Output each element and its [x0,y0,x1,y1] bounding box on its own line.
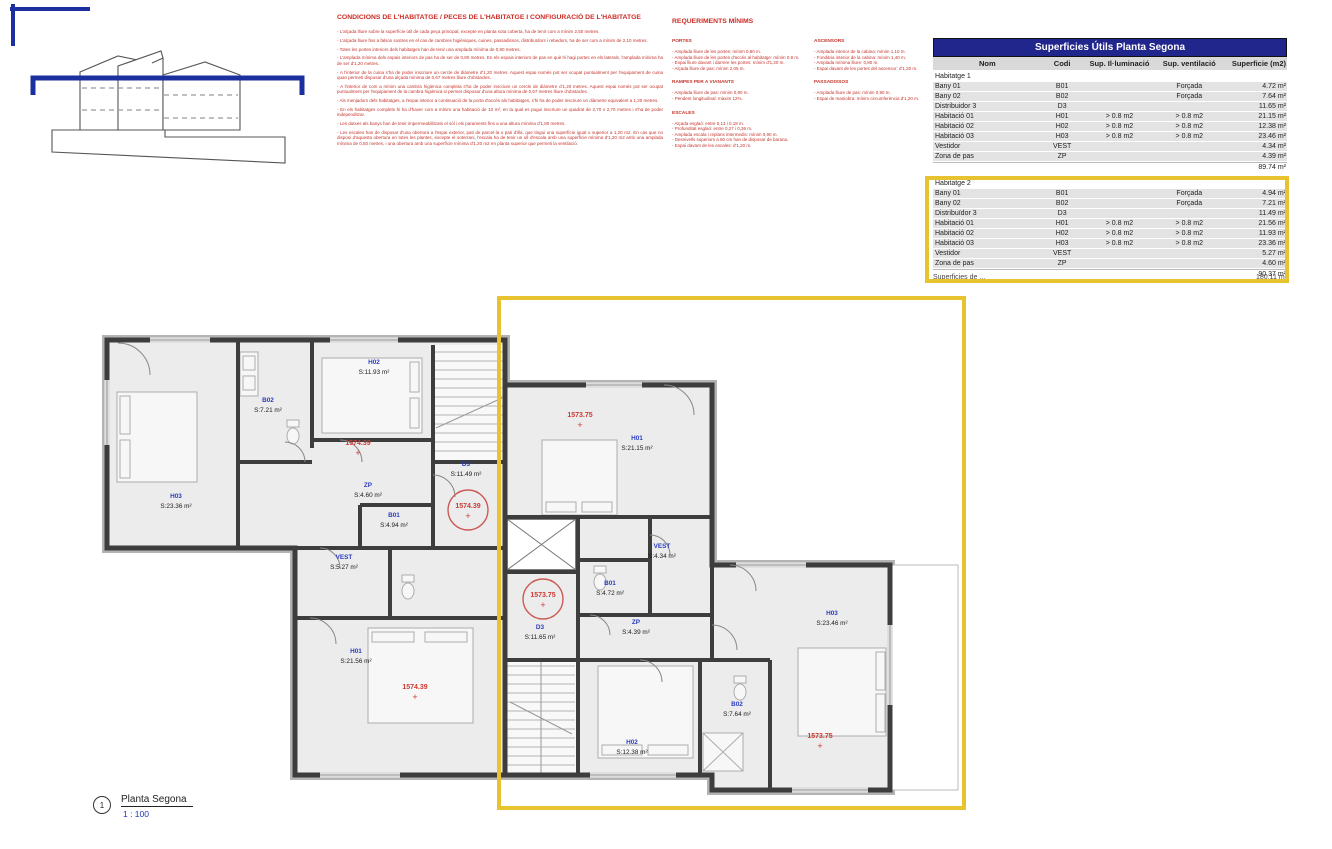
req-section-title: RAMPES PER A VIANANTS [672,80,810,85]
req-item: - Alçada lliure de pas: mínim 2,05 m. [672,66,810,72]
table-group-total: 89.74 m² [1224,164,1287,172]
table-cell: 11.65 m² [1224,103,1287,111]
table-row: Distribuidor 3D311.65 m² [933,102,1287,111]
table-cell: > 0.8 m2 [1085,230,1155,238]
table-cell: > 0.8 m2 [1154,240,1224,248]
table-cell: B01 [1040,83,1085,91]
room-code: H03 [170,493,182,500]
table-cell [1154,153,1224,161]
room-area: S:11.93 m² [359,369,390,376]
drawing-sheet: CONDICIONS DE L'HABITATGE / PECES DE L'H… [0,0,1332,849]
table-cell: Bany 02 [933,93,1040,101]
datum-cross-icon: + [540,600,545,610]
table-cell: 11.93 m² [1224,230,1287,238]
table-cell: H03 [1040,240,1085,248]
room-code: D3 [462,461,471,468]
floor-plan: H03S:23.36 m²B02S:7.21 m²H02S:11.93 m²ZP… [90,328,970,815]
table-col-header: Sup. ventilació [1154,59,1224,68]
table-title: Superficies Útils Planta Segona [933,38,1287,57]
elevation-buildings [52,51,285,163]
table-cell: 4.72 m² [1224,83,1287,91]
condition-item: - L'amplada mínima dels espais interiors… [337,55,663,66]
table-col-header: Superficie (m2) [1224,59,1287,68]
table-cell: D3 [1040,210,1085,218]
req-col-1: PORTES- Amplada lliure de les portes: mí… [672,39,810,158]
table-cell [1085,210,1155,218]
table-cell: 7.21 m² [1224,200,1287,208]
sink-counter [240,352,258,396]
room-code: ZP [364,482,373,489]
table-cell [1085,250,1155,258]
table-cell: D3 [1040,103,1085,111]
req-section-title: ESCALES [672,111,810,116]
table-cell [1154,250,1224,258]
view-number-badge: 1 [93,796,111,814]
table-total-row: 89.74 m² [933,162,1287,172]
table-cell: 4.94 m² [1224,190,1287,198]
table-row: Distribuïdor 3D311.49 m² [933,209,1287,218]
table-cell: 11.49 m² [1224,210,1287,218]
room-code: D3 [536,624,545,631]
table-cell: > 0.8 m2 [1085,240,1155,248]
req-item: - Espai davant de les escales: d'1,20 m. [672,143,810,149]
condition-item: - L'alçada lliure sobre la superfície út… [337,29,663,34]
table-cell: 7.64 m² [1224,93,1287,101]
table-cell: Zona de pas [933,153,1040,161]
conditions-title: CONDICIONS DE L'HABITATGE / PECES DE L'H… [337,14,663,22]
table-cell: VEST [1040,250,1085,258]
table-row: Bany 01B01Forçada4.72 m² [933,82,1287,91]
datum-cross-icon: + [412,692,417,702]
table-cell: H01 [1040,113,1085,121]
room-area: S:23.46 m² [816,620,847,627]
table-cell [1085,190,1155,198]
req-section: RAMPES PER A VIANANTS- Amplada lliure de… [672,80,810,101]
table-group: Habitatge 2Bany 01B01Forçada4.94 m²Bany … [933,179,1287,280]
datum-value: 1574.39 [402,684,427,691]
room-code: H01 [631,435,643,442]
room-area: S:5.27 m² [330,564,358,571]
table-cell: 21.15 m² [1224,113,1287,121]
table-cell [1085,200,1155,208]
elevator-shaft [507,519,576,570]
requirements-title: REQUERIMENTS MÍNIMS [672,18,942,25]
table-group-name-row: Habitatge 2 [933,179,1287,188]
table-cell: ZP [1040,260,1085,268]
table-row: Habitació 02H02> 0.8 m2> 0.8 m211.93 m² [933,229,1287,238]
table-cell: Habitació 01 [933,113,1040,121]
table-cell [1085,153,1155,161]
table-cell [1154,210,1224,218]
table-cell: VEST [1040,143,1085,151]
room-code: VEST [336,554,353,561]
table-cell: 23.46 m² [1224,133,1287,141]
condition-item: - Totes les portes interiors dels habita… [337,47,663,52]
table-row: Habitació 03H03> 0.8 m2> 0.8 m223.36 m² [933,239,1287,248]
table-cell: Zona de pas [933,260,1040,268]
plan-scale: 1 : 100 [121,809,193,819]
table-columns: NomCodiSup. Il·luminacióSup. ventilacióS… [933,57,1287,71]
table-row: Zona de pasZP4.39 m² [933,152,1287,161]
table-cell: Bany 01 [933,190,1040,198]
condition-item: - Les dutxes als banys han de tenir impe… [337,121,663,126]
req-item: - Espai de maniobra: mínim circumferènci… [814,96,942,102]
room-area: S:23.36 m² [160,503,191,510]
bed [117,392,197,482]
table-cell: 4.34 m² [1224,143,1287,151]
bed [798,648,886,736]
room-code: B01 [604,580,616,587]
table-row: Bany 02B02Forçada7.21 m² [933,199,1287,208]
table-row: Habitació 01H01> 0.8 m2> 0.8 m221.56 m² [933,219,1287,228]
room-area: S:4.60 m² [354,492,382,499]
table-cell: B02 [1040,200,1085,208]
table-row: VestidorVEST5.27 m² [933,249,1287,258]
table-row: Bany 01B01Forçada4.94 m² [933,189,1287,198]
bed [368,628,473,723]
room-area: S:7.64 m² [723,711,751,718]
table-group-name-row: Habitatge 1 [933,72,1287,81]
req-section: ESCALES- Alçada esglaó: entre 0,13 i 0,1… [672,111,810,149]
elevation-sketch [0,0,330,180]
table-cell: Forçada [1154,83,1224,91]
section-marker-icon [10,4,90,46]
room-code: H02 [626,739,638,746]
requirements-text: REQUERIMENTS MÍNIMS PORTES- Amplada lliu… [672,18,942,158]
datum-value: 1573.75 [530,592,555,599]
table-cell: > 0.8 m2 [1085,113,1155,121]
table-cell: 4.60 m² [1224,260,1287,268]
table-cell: Vestidor [933,250,1040,258]
table-cell: Forçada [1154,190,1224,198]
room-area: S:4.94 m² [380,522,408,529]
table-cell [1085,103,1155,111]
condition-item: - En els habitatges complets hi ha d'hav… [337,107,663,118]
spacer [1154,164,1224,172]
spacer [1085,164,1155,172]
table-row: Habitació 02H02> 0.8 m2> 0.8 m212.38 m² [933,122,1287,131]
table-cell [1154,103,1224,111]
conditions-text: CONDICIONS DE L'HABITATGE / PECES DE L'H… [337,14,663,149]
toilet-icon [734,676,746,700]
table-col-header: Nom [933,59,1040,68]
room-area: S:7.21 m² [254,407,282,414]
room-code: H02 [368,359,380,366]
room-area: S:4.72 m² [596,590,624,597]
table-group: Habitatge 1Bany 01B01Forçada4.72 m²Bany … [933,72,1287,173]
table-cell: H02 [1040,230,1085,238]
req-section-title: PORTES [672,39,810,44]
table-row: Zona de pasZP4.60 m² [933,259,1287,268]
room-code: B02 [262,397,274,404]
table-cell: Vestidor [933,143,1040,151]
room-area: S:11.49 m² [451,471,482,478]
table-cell: 23.36 m² [1224,240,1287,248]
table-cell: B02 [1040,93,1085,101]
table-cell [1154,260,1224,268]
req-section-title: ASCENSORS [814,39,942,44]
table-cell: H01 [1040,220,1085,228]
req-section: ASCENSORS- Amplada interior de la cabina… [814,39,942,71]
table-cell: > 0.8 m2 [1154,133,1224,141]
table-cell: Habitació 02 [933,230,1040,238]
toilet-icon [402,575,414,599]
datum-cross-icon: + [355,448,360,458]
table-row: Habitació 01H01> 0.8 m2> 0.8 m221.15 m² [933,112,1287,121]
room-code: H01 [350,648,362,655]
table-cell: Forçada [1154,200,1224,208]
datum-value: 1574.39 [345,440,370,447]
table-cell [1085,143,1155,151]
room-area: S:11.65 m² [525,634,556,641]
plan-title-block: 1 Planta Segona 1 : 100 [93,794,193,819]
req-section: PORTES- Amplada lliure de les portes: mí… [672,39,810,71]
table-cell: Bany 02 [933,200,1040,208]
table-row: Bany 02B02Forçada7.64 m² [933,92,1287,101]
spacer [1040,164,1085,172]
condition-item: - A l'interior de la cuina s'ha de poder… [337,70,663,81]
req-item: - Espai davant de les portes del ascenso… [814,66,942,72]
shower [703,733,743,771]
table-row: Habitació 03H03> 0.8 m2> 0.8 m223.46 m² [933,132,1287,141]
table-col-header: Sup. Il·luminació [1085,59,1155,68]
plan-name: Planta Segona [121,794,193,807]
table-row: VestidorVEST4.34 m² [933,142,1287,151]
table-cell: 5.27 m² [1224,250,1287,258]
room-area: S:4.34 m² [648,553,676,560]
room-code: B02 [731,701,743,708]
table-cell [1085,260,1155,268]
table-cell: B01 [1040,190,1085,198]
table-cell: H02 [1040,123,1085,131]
table-cell: > 0.8 m2 [1154,220,1224,228]
datum-cross-icon: + [465,511,470,521]
condition-item: - Als menjadors dels habitatges, a l'esp… [337,98,663,103]
table-obscured-row: Superficies de ... 180.11 m² [933,274,1287,281]
room-code: VEST [654,543,671,550]
table-cell: > 0.8 m2 [1154,123,1224,131]
req-item: - Pendent longitudinal: màxim 12%. [672,96,810,102]
room-code: ZP [632,619,641,626]
room-area: S:21.15 m² [621,445,652,452]
bed [598,666,693,758]
datum-value: 1573.75 [807,733,832,740]
datum-cross-icon: + [577,420,582,430]
obscured-value: 180.11 m² [1256,274,1287,281]
room-code: B01 [388,512,400,519]
req-col-2: ASCENSORS- Amplada interior de la cabina… [814,39,942,158]
room-area: S:12.38 m² [616,749,647,756]
table-cell: Forçada [1154,93,1224,101]
table-cell: > 0.8 m2 [1085,123,1155,131]
condition-item: - A l'interior de com a mínim una cambra… [337,84,663,95]
table-cell [1085,93,1155,101]
conditions-bullets: - L'alçada lliure sobre la superfície út… [337,29,663,146]
table-cell: Distribuïdor 3 [933,210,1040,218]
table-cell [1154,143,1224,151]
room-area: S:21.56 m² [340,658,371,665]
obscured-label: Superficies de ... [933,274,985,281]
table-cell: H03 [1040,133,1085,141]
table-cell [1085,83,1155,91]
table-cell: > 0.8 m2 [1085,220,1155,228]
table-cell: Habitació 01 [933,220,1040,228]
req-section-title: PASSADISSOS [814,80,942,85]
condition-item: - Les escales han de disposar d'una ober… [337,130,663,146]
table-cell: 4.39 m² [1224,153,1287,161]
room-area: S:4.39 m² [622,629,650,636]
table-cell: ZP [1040,153,1085,161]
table-cell: > 0.8 m2 [1154,113,1224,121]
datum-cross-icon: + [817,741,822,751]
condition-item: - L'alçada lliure fins a falsos sostres … [337,38,663,43]
table-group-name: Habitatge 2 [933,180,1040,188]
table-col-header: Codi [1040,59,1085,68]
table-cell: Bany 01 [933,83,1040,91]
room-code: H03 [826,610,838,617]
table-cell: Habitació 03 [933,240,1040,248]
table-group-name: Habitatge 1 [933,73,1040,81]
datum-value: 1573.75 [567,412,592,419]
table-cell: Habitació 03 [933,133,1040,141]
table-cell: 12.38 m² [1224,123,1287,131]
datum-value: 1574.39 [455,503,480,510]
table-cell: 21.56 m² [1224,220,1287,228]
table-cell: Distribuidor 3 [933,103,1040,111]
table-cell: > 0.8 m2 [1154,230,1224,238]
toilet-icon [287,420,299,444]
table-cell: Habitació 02 [933,123,1040,131]
req-section: PASSADISSOS- Amplada lliure de pas: míni… [814,80,942,101]
table-cell: > 0.8 m2 [1085,133,1155,141]
bed [542,440,617,515]
spacer [933,164,1040,172]
areas-table: Superficies Útils Planta Segona NomCodiS… [933,38,1287,71]
